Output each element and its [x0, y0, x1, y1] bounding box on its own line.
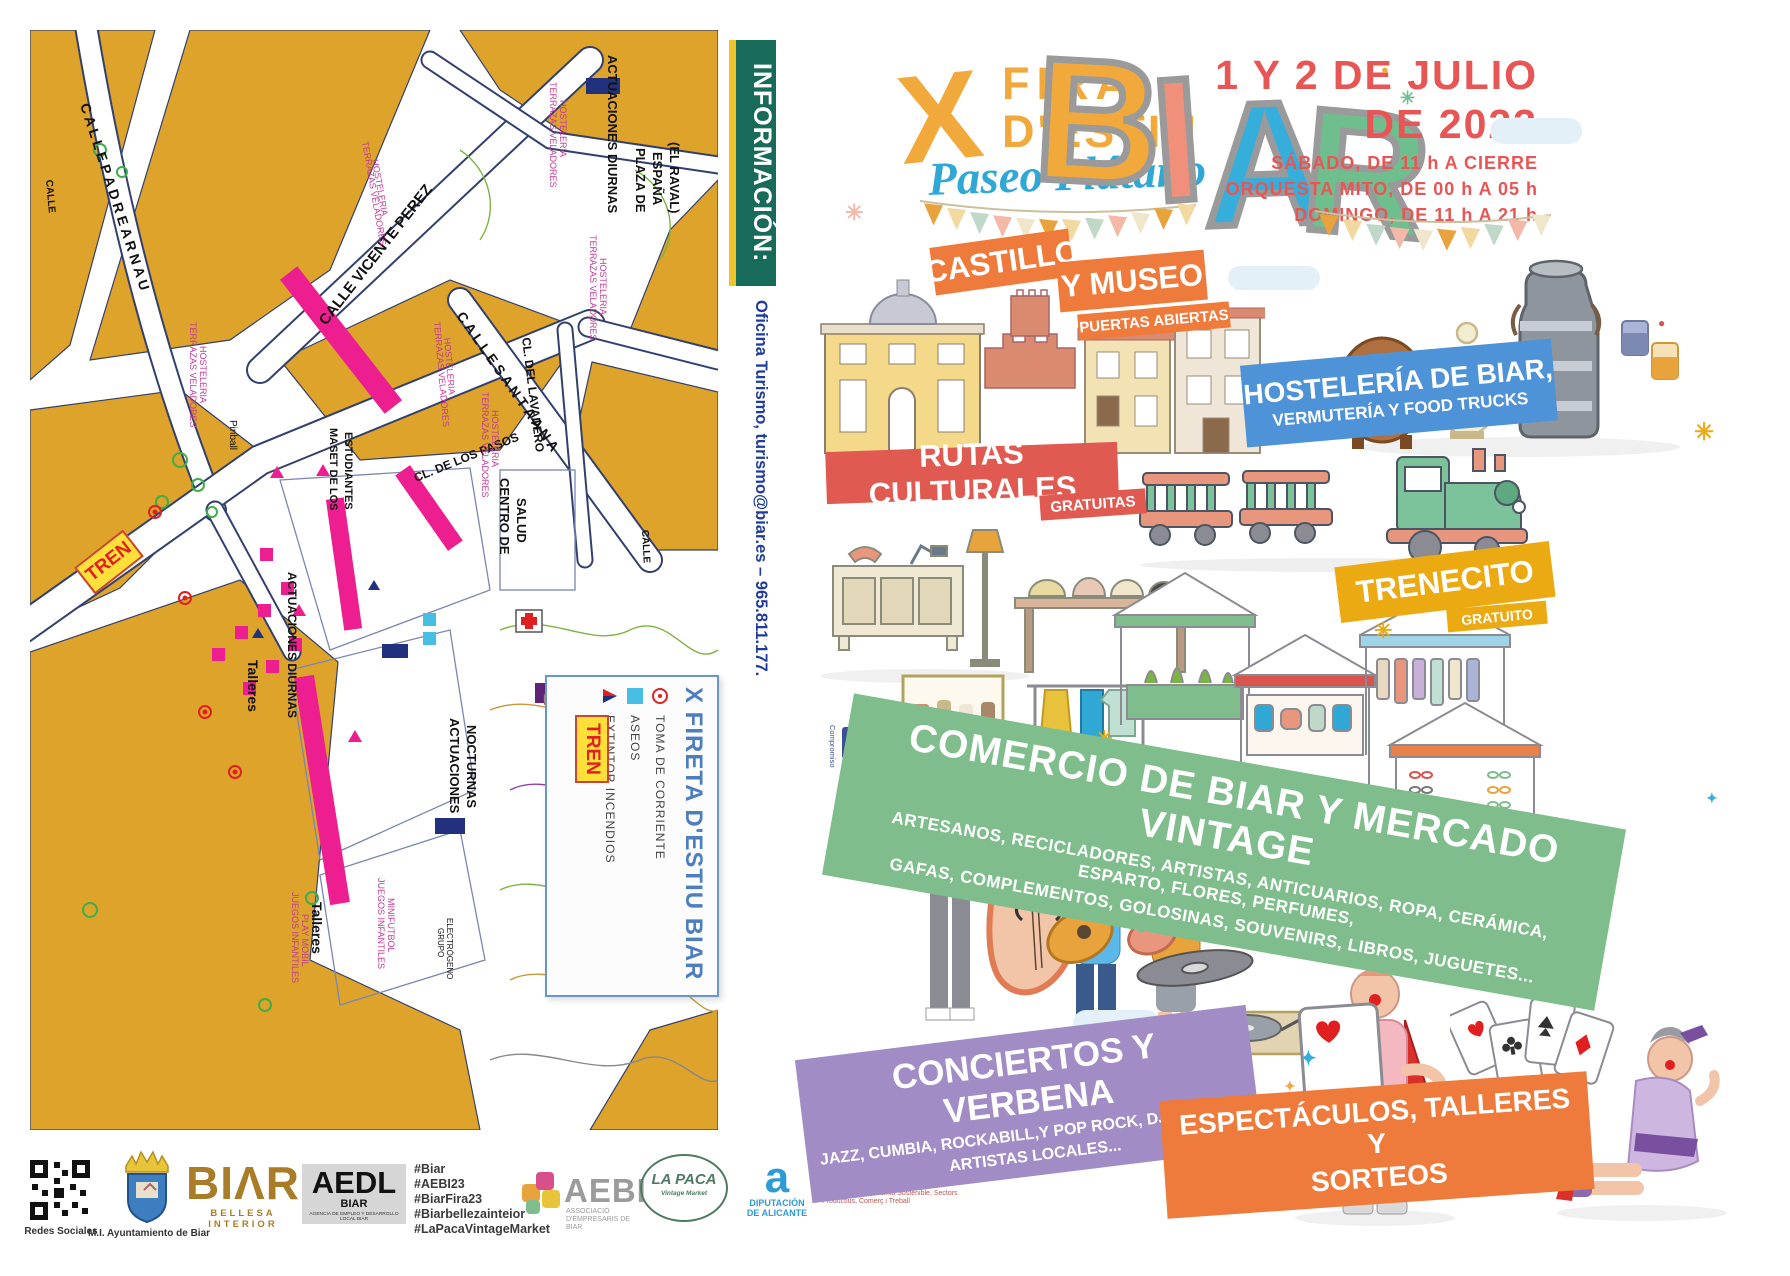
- tourism-contact: Oficina Turismo, turismo@biar.es – 965.8…: [744, 300, 770, 720]
- map-label: (EL RAVAL): [667, 142, 682, 214]
- map-legend: X FIRETA D'ESTIU BIAR TOMA DE CORRIENTE …: [545, 675, 719, 997]
- map-label: PLAZA DE: [633, 148, 648, 213]
- telephone-icon: [849, 547, 881, 562]
- cloud-illustration: [1490, 118, 1582, 144]
- espectaculos-line2: SORTEOS: [1310, 1157, 1449, 1198]
- map-label: ELECTRÓGENO: [445, 918, 454, 979]
- info-accent-stripe: [729, 40, 736, 286]
- lapaca-title: LA PACA: [642, 1172, 726, 1187]
- hashtag: #LaPacaVintageMarket: [414, 1222, 550, 1237]
- map-label: ESPAÑA: [650, 152, 665, 206]
- bunting-flag: [1131, 212, 1150, 234]
- first-aid-icon: [516, 610, 542, 632]
- bunting-flag: [924, 203, 943, 225]
- floor-lamp-icon: [967, 530, 1003, 666]
- map-label: HOSTELERIA: [198, 346, 208, 403]
- bunting-flag: [1108, 215, 1127, 237]
- qr-code-icon: [28, 1158, 92, 1222]
- diputacion-mark: a: [742, 1158, 812, 1198]
- map-label: HOSTELERIA: [598, 258, 608, 315]
- ayuntamiento-crest-icon: [118, 1148, 176, 1226]
- sparkle-icon: ✳: [1694, 418, 1714, 447]
- aedl-caption: AGENCIA DE EMPLEO Y DESARROLLO LOCAL BIA…: [302, 1212, 406, 1222]
- bunting-flag: [993, 215, 1012, 237]
- schedule-saturday: SÁBADO, DE 11 h A CIERRE: [1190, 153, 1538, 174]
- map-label: JUEGOS INFANTILES: [376, 878, 386, 969]
- sparkle-icon: ✦: [1706, 790, 1718, 807]
- bunting-flag: [1177, 203, 1196, 225]
- biar-letter-b: B: [1031, 32, 1166, 213]
- sparkle-icon: ●: [1658, 316, 1665, 330]
- aebi-subtitle: ASSOCIACIÓ D'EMPRESARIS DE BIAR: [566, 1208, 630, 1232]
- fire-extinguisher-icon: [601, 687, 619, 705]
- aedl-logo: AEDL BIAR AGENCIA DE EMPLEO Y DESARROLLO…: [302, 1164, 406, 1224]
- sparkle-icon: ✳: [1374, 618, 1392, 644]
- map-label: MASET DE LOS: [327, 428, 339, 511]
- sparkle-icon: ✳: [845, 200, 863, 226]
- map-label: ACTUACIONES DIURNAS: [605, 55, 620, 214]
- event-dates: 1 Y 2 DE JULIO DE 2023 SÁBADO, DE 11 h A…: [1190, 52, 1538, 226]
- cloud-illustration: [1228, 266, 1320, 290]
- aebi-icon: [520, 1170, 564, 1216]
- bunting-flag: [970, 212, 989, 234]
- map-label: HOSTELERIA: [558, 100, 568, 157]
- market-stall: [1115, 573, 1255, 725]
- map-label: Talleres: [309, 902, 325, 954]
- aebi-title: AEBI: [564, 1172, 647, 1210]
- sparkle-icon: ✦: [1300, 1046, 1317, 1071]
- map-label: Pinball: [227, 420, 238, 450]
- map-label: HOSTELERIA: [490, 410, 500, 467]
- map-label: TERRAZAS VELADORES: [548, 82, 558, 188]
- map-label: NOCTURNAS: [464, 725, 479, 808]
- drink-glasses-icon: [1622, 321, 1678, 379]
- diputacion-logo: a DIPUTACIÓN DE ALICANTE: [742, 1158, 812, 1218]
- legend-title: X FIRETA D'ESTIU BIAR: [679, 687, 707, 985]
- diputacion-title: DIPUTACIÓN DE ALICANTE: [742, 1198, 812, 1218]
- biar-bellesa-wordmark: BIΛR: [178, 1160, 308, 1206]
- map-label: ACTUACIONES DIURNAS: [285, 572, 299, 718]
- info-header: INFORMACIÓN:: [736, 40, 776, 286]
- map-label: SALUD: [514, 498, 529, 543]
- toilets-icon: [626, 687, 644, 705]
- map-label: CENTRO DE: [497, 478, 512, 555]
- bunting-flag: [947, 208, 966, 230]
- calidad-turistica-line1: Compromiso: [828, 725, 837, 768]
- schedule-orchestra: ORQUESTA MITO, DE 00 h A 05 h: [1190, 179, 1538, 200]
- map-label: TERRAZAS VELADORES: [480, 392, 490, 498]
- legend-label: TOMA DE CORRIENTE: [653, 715, 667, 860]
- legend-item: TOMA DE CORRIENTE: [651, 687, 669, 985]
- map-label: JUEGOS INFANTILES: [290, 892, 300, 983]
- map-label: MINIFUTBOL: [386, 898, 396, 953]
- train-stop-badge: TREN: [575, 715, 609, 783]
- lapaca-subtitle: Vintage Market: [642, 1190, 726, 1197]
- map-label: ACTUACIONES: [447, 718, 462, 814]
- map-label: Talleres: [245, 660, 261, 712]
- sparkle-icon: ✳: [1400, 88, 1415, 109]
- date-line2: DE 2023: [1190, 101, 1538, 148]
- map-label: CALLE: [639, 530, 652, 564]
- map-label: PLAY MOBIL: [300, 914, 310, 967]
- espectaculos-line1: ESPECTÁCULOS, TALLERES Y: [1170, 1082, 1581, 1174]
- lapaca-logo: LA PACA Vintage Market: [640, 1154, 728, 1222]
- legend-item: ASEOS: [626, 687, 644, 985]
- date-line1: 1 Y 2 DE JULIO: [1190, 52, 1538, 99]
- map-label: TERRAZAS VELADORES: [588, 235, 598, 341]
- desk-lamp-icon: [911, 546, 947, 564]
- aedl-title: AEDL: [302, 1167, 406, 1198]
- aebi-logo: AEBI ASSOCIACIÓ D'EMPRESARIS DE BIAR: [520, 1170, 630, 1221]
- biar-bellesa-logo: BIΛR BELLESA INTERIOR: [178, 1160, 308, 1230]
- flyer-page: C A L L E P A D R E A R N A UCALLECALLE …: [0, 0, 1790, 1276]
- map-label: TERRAZAS VELADORES: [188, 322, 198, 428]
- legend-label: ASEOS: [628, 715, 642, 761]
- bunting-flag: [1154, 208, 1173, 230]
- map-label: ESTUDIANTES: [342, 432, 354, 510]
- sparkle-icon: ●: [1381, 62, 1389, 77]
- biar-bellesa-subtitle: BELLESA INTERIOR: [178, 1208, 308, 1230]
- map-label: GRUPO: [436, 928, 445, 957]
- bunting-flag: [1085, 218, 1104, 240]
- power-outlet-icon: [651, 687, 669, 705]
